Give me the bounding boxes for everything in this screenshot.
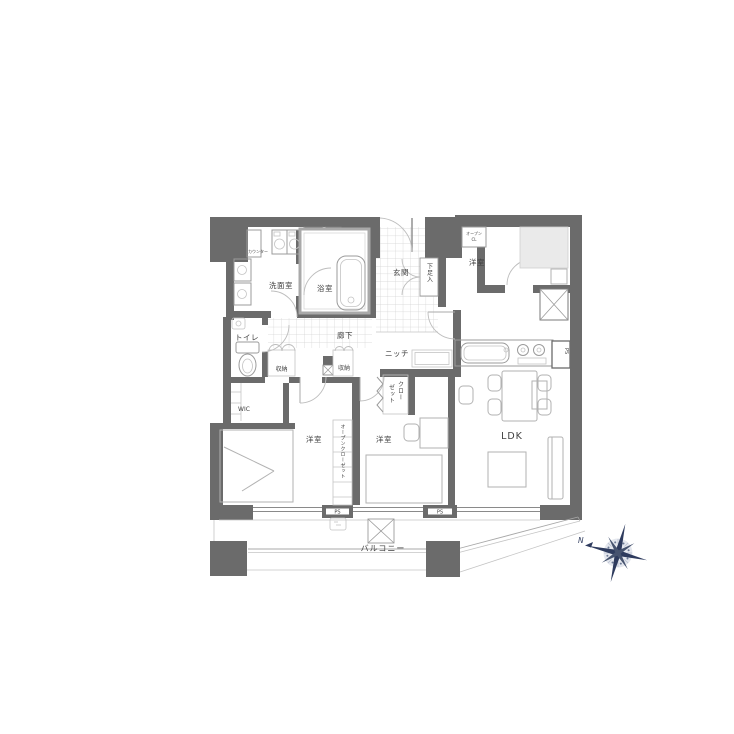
windows <box>253 508 540 512</box>
storage-mid-box: 収納 <box>333 347 353 377</box>
floor-plan-drawing: PS PS MB 収納 <box>0 0 734 734</box>
compass-north-label: N <box>578 536 584 545</box>
balcony-column-mid <box>426 541 460 577</box>
washroom-label: 洗面室 <box>269 280 293 290</box>
niche-label: ニッチ <box>385 349 409 358</box>
corridor-label: 廊下 <box>337 330 353 340</box>
compass-rose: N <box>578 524 647 582</box>
storage-left-box: 収納 <box>268 345 295 376</box>
niche-box <box>412 350 452 367</box>
entrance-label: 玄関 <box>393 267 409 277</box>
stove <box>518 345 547 365</box>
counter-label: カウンター <box>248 248 268 254</box>
closet-label-col2: ゼット <box>388 383 395 403</box>
toilet-fixtures <box>232 318 259 376</box>
bedroom-tr-label: 洋室 <box>469 257 485 267</box>
ps-wall-left-label: PS <box>334 510 340 516</box>
ps-shaft-kitchen: PS <box>552 341 570 368</box>
ps-shaft-bottom-right: PS <box>423 505 457 518</box>
bathroom-unit <box>300 229 369 313</box>
kitchen-counter <box>455 340 553 366</box>
bedroom-bl-label: 洋室 <box>306 434 322 444</box>
floor-plan-page: { "document": { "type": "apartment-floor… <box>0 0 734 734</box>
storage-left-label: 収納 <box>275 365 287 373</box>
bed-bottom-left <box>220 430 293 502</box>
wic-label: WIC <box>238 406 250 413</box>
balcony-column-left <box>210 541 247 576</box>
refrigerator-space <box>540 289 568 320</box>
balcony-label: バルコニー <box>361 544 406 553</box>
open-cl-label-2: CL <box>471 237 477 242</box>
bath-label: 浴室 <box>317 283 333 293</box>
bedroom-bm-label: 洋室 <box>376 434 392 444</box>
ps-shaft-bottom-left: PS <box>322 505 353 518</box>
toilet-label: トイレ <box>235 333 259 342</box>
balcony-hatch-box <box>368 519 394 543</box>
ps-wall-right-label: PS <box>437 510 443 516</box>
closet-label-col1: クロー <box>397 381 404 401</box>
shoe-cabinet-label: 下足入 <box>426 263 433 283</box>
open-closet: オープンクローゼット <box>333 420 352 505</box>
ldk-label: LDK <box>501 431 523 442</box>
closet: クロー ゼット <box>377 375 408 414</box>
wic-shelves <box>231 383 241 421</box>
ps-shaft-corridor <box>323 356 333 375</box>
bedroom-bm-furniture <box>366 418 448 503</box>
storage-mid-label: 収納 <box>338 364 350 372</box>
open-closet-label: オープンクローゼット <box>340 424 346 479</box>
ps-kitchen-label: PS <box>563 348 569 354</box>
open-cl-label-1: オープン <box>466 230 482 236</box>
